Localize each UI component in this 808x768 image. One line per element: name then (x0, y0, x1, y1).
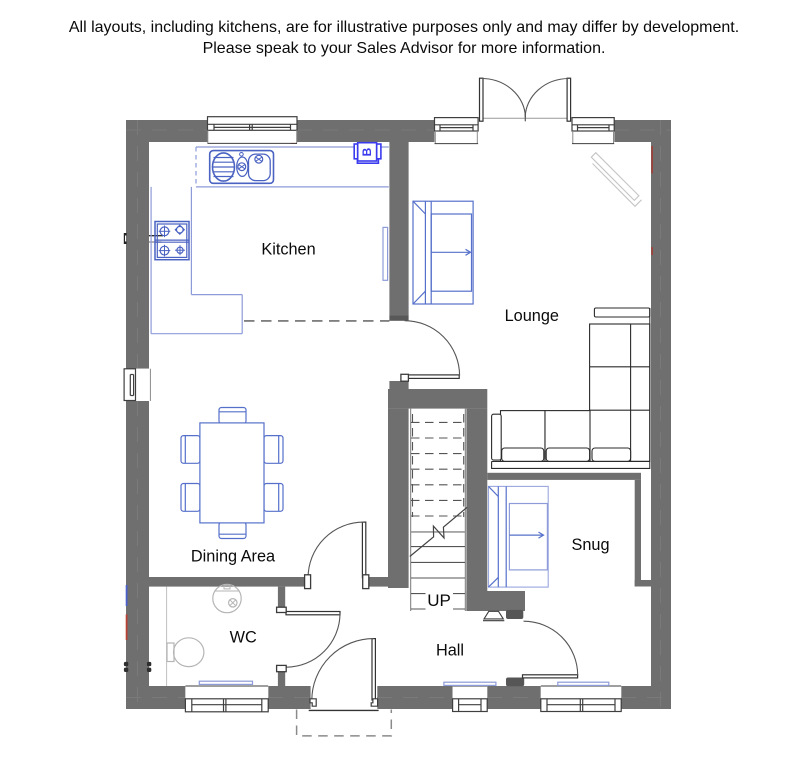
svg-text:UP: UP (427, 591, 451, 610)
svg-text:All layouts, including kitchen: All layouts, including kitchens, are for… (69, 19, 739, 36)
svg-text:Dining Area: Dining Area (191, 548, 276, 566)
svg-text:Hall: Hall (436, 641, 464, 659)
svg-text:Please speak to your Sales Adv: Please speak to your Sales Advisor for m… (203, 40, 606, 57)
svg-text:Snug: Snug (571, 536, 609, 554)
svg-text:Kitchen: Kitchen (261, 241, 315, 259)
svg-text:Lounge: Lounge (505, 307, 559, 325)
svg-text:WC: WC (230, 629, 257, 647)
svg-text:B: B (360, 147, 374, 156)
